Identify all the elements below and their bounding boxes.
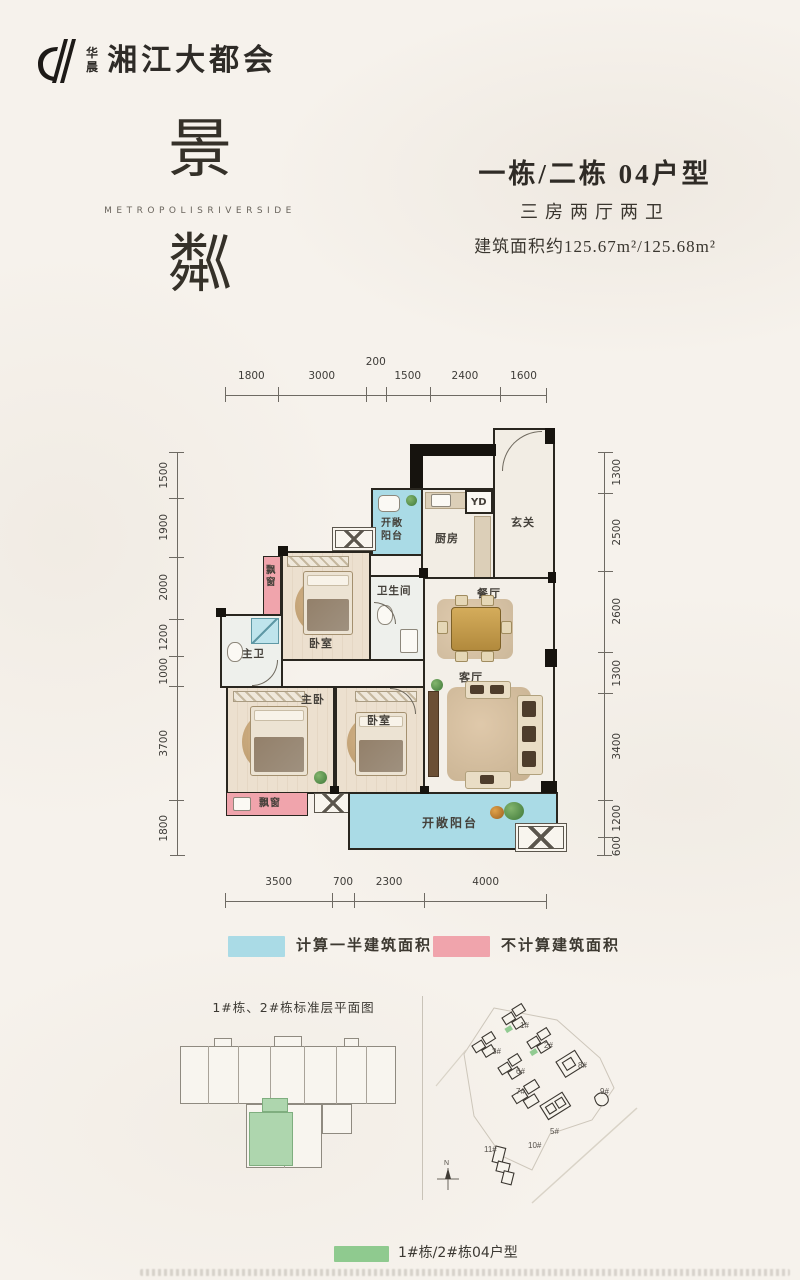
brand-logo: 华晨 湘江大都会 xyxy=(34,36,277,86)
wall-column xyxy=(545,428,555,444)
bay-window-top: 飘窗 xyxy=(263,556,281,616)
disclaimer-strip xyxy=(140,1269,790,1276)
flower-icon xyxy=(490,806,504,819)
brand-monogram-icon xyxy=(34,37,78,85)
plant-icon xyxy=(504,802,524,820)
legend-swatch-half-area xyxy=(228,936,285,957)
brand-name-small: 华晨 xyxy=(86,47,99,75)
unit-04-marker xyxy=(529,1048,538,1056)
wall-column xyxy=(545,649,557,667)
wall-column xyxy=(278,546,288,556)
wall-column xyxy=(420,786,429,794)
svg-text:9#: 9# xyxy=(600,1087,609,1096)
svg-text:7#: 7# xyxy=(516,1087,525,1096)
sink-icon xyxy=(378,495,400,512)
wall-column xyxy=(216,608,226,617)
shower-icon xyxy=(400,629,418,653)
ac-platform-box xyxy=(335,530,373,548)
dim-chain-bottom: 3500 700 2300 4000 xyxy=(225,876,547,902)
unit-title: 一栋/二栋 04户型 xyxy=(430,158,760,190)
stove-icon xyxy=(431,494,451,507)
sofa-icon xyxy=(465,771,511,789)
svg-text:3#: 3# xyxy=(492,1047,501,1056)
plant-icon xyxy=(314,771,327,784)
unit-04-marker xyxy=(504,1025,513,1033)
unit-area: 建筑面积约125.67m²/125.68m² xyxy=(430,237,760,257)
hero-title-en: METROPOLISRIVERSIDE xyxy=(80,207,320,216)
ac-platform-box xyxy=(518,826,564,849)
wall-column xyxy=(548,572,556,583)
room-yd: YD xyxy=(465,490,493,514)
wardrobe xyxy=(233,691,305,702)
shower-icon xyxy=(251,618,279,644)
room-bedroom-top: 卧室 xyxy=(281,551,371,661)
sofa-icon xyxy=(465,681,511,699)
svg-text:11#: 11# xyxy=(484,1145,497,1154)
compass-icon: N xyxy=(437,1160,459,1190)
bay-window-bottom: 飘窗 xyxy=(226,792,308,816)
room-balcony-top: 开敞阳台 xyxy=(371,488,423,556)
wall-column xyxy=(419,568,428,578)
road-line xyxy=(436,1050,466,1086)
building-7 xyxy=(540,1092,571,1119)
wall-column xyxy=(541,781,557,793)
plate-unit-highlight xyxy=(249,1112,293,1166)
svg-text:8#: 8# xyxy=(578,1061,587,1070)
legend-swatch-unit xyxy=(334,1246,389,1262)
room-master-bedroom: 主卧 xyxy=(226,686,335,794)
legend-label-unit: 1#栋/2#栋04户型 xyxy=(398,1245,518,1262)
toilet-icon xyxy=(227,642,243,662)
cushion-icon xyxy=(233,797,251,811)
legend-label-excluded: 不计算建筑面积 xyxy=(501,936,620,957)
ac-platform-box xyxy=(314,793,352,813)
room-dining-living: 餐厅 客厅 xyxy=(423,577,555,794)
brand-name-large: 湘江大都会 xyxy=(107,46,277,76)
wall-column xyxy=(330,786,339,794)
floor-plate-drawing xyxy=(176,1036,411,1191)
plate-unit-highlight xyxy=(262,1098,288,1112)
section-divider xyxy=(422,996,423,1200)
svg-text:2#: 2# xyxy=(544,1041,553,1050)
svg-text:5#: 5# xyxy=(550,1127,559,1136)
tv-cabinet-icon xyxy=(428,691,439,777)
dim-chain-right: 1300 2500 2600 1300 3400 1200 600 xyxy=(604,452,630,856)
svg-text:10#: 10# xyxy=(528,1141,542,1150)
wardrobe xyxy=(287,556,349,567)
plant-icon xyxy=(406,495,417,506)
svg-text:1#: 1# xyxy=(520,1021,529,1030)
sofa-icon xyxy=(517,695,543,775)
brochure-page: 华晨 湘江大都会 景 METROPOLISRIVERSIDE 粼 一栋/二栋 0… xyxy=(0,0,800,1280)
plate-title: 1#栋、2#栋标准层平面图 xyxy=(176,1002,411,1015)
dim-chain-left: 1500 1900 2000 1200 1000 3700 1800 xyxy=(152,452,178,856)
hero-title-bottom: 粼 xyxy=(140,233,260,297)
legend-swatch-excluded xyxy=(433,936,490,957)
site-plan: 1# 2# 3# 6# 8# 7# 9# 5# 10# xyxy=(432,988,667,1213)
kitchen-counter xyxy=(474,516,491,578)
svg-text:6#: 6# xyxy=(516,1067,525,1076)
plant-icon xyxy=(431,679,443,691)
bed-icon xyxy=(303,571,353,635)
bed-icon xyxy=(250,706,308,776)
unit-layout: 三房两厅两卫 xyxy=(430,202,760,224)
legend-label-half-area: 计算一半建筑面积 xyxy=(296,936,432,957)
hero-title-top: 景 xyxy=(140,118,260,182)
dim-chain-top: 1800 3000 200 1500 2400 1600 xyxy=(225,370,547,396)
dining-table-icon xyxy=(451,607,501,651)
svg-text:N: N xyxy=(444,1160,449,1167)
